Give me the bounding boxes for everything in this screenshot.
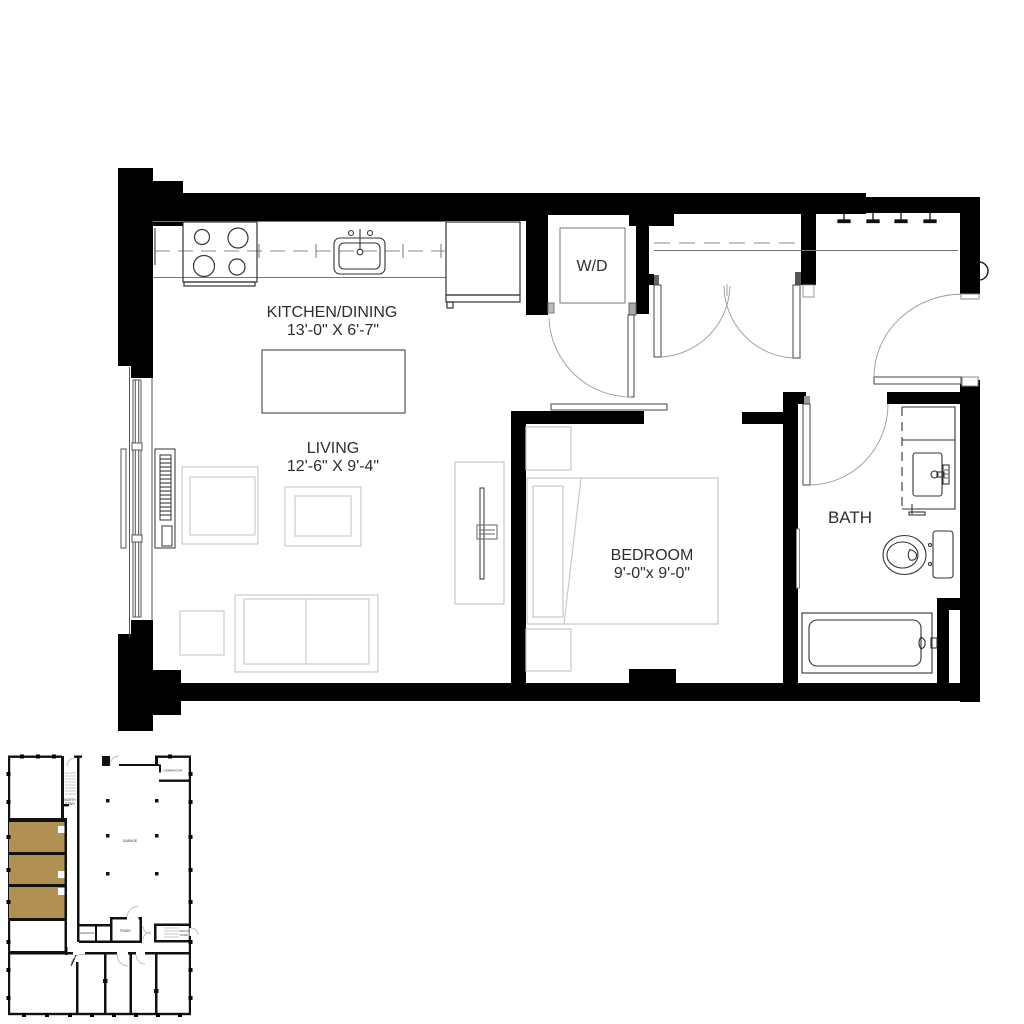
svg-text:BEDROOM: BEDROOM [611, 547, 694, 564]
svg-text:TRASH: TRASH [120, 929, 132, 933]
svg-text:STAIR: STAIR [180, 933, 188, 937]
svg-text:GENERATOR: GENERATOR [163, 769, 183, 773]
svg-text:STAIR: STAIR [65, 802, 75, 806]
svg-text:ELEVATOR: ELEVATOR [80, 931, 94, 935]
svg-text:KITCHEN/DINING: KITCHEN/DINING [267, 304, 398, 321]
svg-text:13'-0" X 6'-7": 13'-0" X 6'-7" [287, 322, 379, 339]
svg-text:12'-6" X 9'-4": 12'-6" X 9'-4" [287, 458, 379, 475]
svg-text:BATH: BATH [828, 508, 872, 527]
svg-text:9'-0"x 9'-0": 9'-0"x 9'-0" [614, 565, 690, 582]
svg-text:LIVING: LIVING [307, 440, 359, 457]
svg-text:GARAGE: GARAGE [123, 839, 138, 843]
svg-text:W/D: W/D [576, 258, 607, 275]
